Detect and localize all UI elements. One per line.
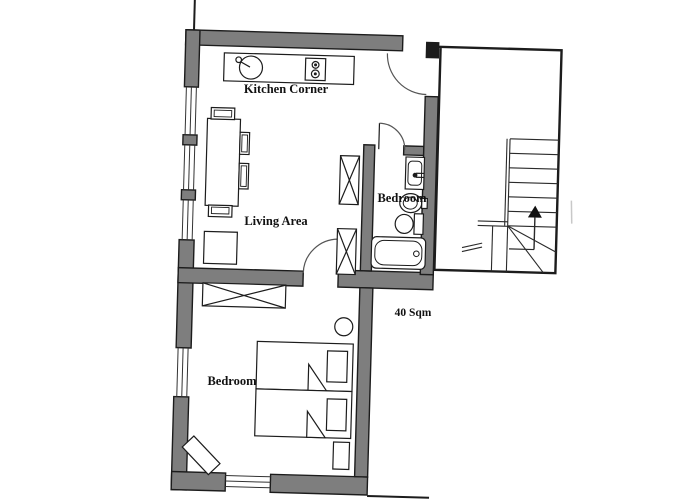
- floorplan-canvas: Kitchen Corner Living Area Bedroom Bedro…: [0, 0, 700, 500]
- stairwell-outline: [432, 47, 561, 273]
- living-label: Living Area: [244, 214, 308, 228]
- floorplan-page: Kitchen Corner Living Area Bedroom Bedro…: [0, 0, 700, 500]
- wall-bottom-right: [270, 474, 367, 495]
- bathroom-label: Bedroom: [377, 191, 427, 205]
- wall-window-mullion-2: [181, 190, 195, 200]
- toilet: [395, 213, 424, 234]
- bathroom-fixtures: [371, 156, 429, 269]
- labels: Kitchen Corner Living Area Bedroom Bedro…: [207, 82, 431, 388]
- bedroom-door-arc: [303, 238, 339, 274]
- kitchen-fixtures: [224, 53, 355, 85]
- wall-bottom-left: [171, 472, 225, 492]
- stove: [305, 58, 326, 81]
- entry-door-arc: [386, 53, 427, 94]
- stairwell: [432, 47, 576, 274]
- scan-artifact: [571, 201, 573, 224]
- twin-bed-1: [256, 341, 353, 391]
- storage-cabinet-x-1: [339, 156, 359, 205]
- wall-window-mullion-1: [183, 135, 197, 145]
- wardrobe-x: [202, 283, 286, 308]
- bathroom-door: [379, 123, 406, 150]
- side-table: [203, 231, 237, 264]
- boundary-line-bottom: [367, 496, 429, 498]
- wall-left-middle: [176, 240, 194, 348]
- kitchen-label: Kitchen Corner: [244, 82, 329, 96]
- pillow: [327, 351, 348, 383]
- nightstand: [333, 442, 350, 469]
- living-furniture: [203, 107, 360, 274]
- bathtub: [371, 237, 426, 270]
- stool: [335, 318, 353, 336]
- wall-bedroom-right: [355, 288, 373, 477]
- bedroom-label: Bedroom: [207, 374, 257, 388]
- twin-bed-2: [255, 389, 352, 439]
- wall-bathroom-top: [404, 146, 424, 156]
- dining-table: [205, 118, 240, 206]
- chair-top: [211, 107, 235, 119]
- window-living-1: [185, 87, 196, 135]
- chair-bottom: [208, 205, 232, 217]
- boundary-line-top: [194, 0, 195, 30]
- plan-geometry: [171, 0, 578, 500]
- stair-break-mark: [462, 243, 482, 253]
- winder-step-line: [507, 226, 557, 252]
- washbasin: [405, 157, 424, 190]
- pillow: [326, 399, 346, 431]
- chair-right-2: [239, 163, 249, 189]
- window-bedroom-left: [177, 348, 188, 397]
- storage-cabinet-x-2: [336, 229, 356, 275]
- wall-top: [186, 30, 403, 51]
- chair-right-1: [240, 132, 250, 154]
- window-living-3: [182, 200, 193, 240]
- window-bedroom-bottom: [225, 476, 270, 488]
- area-label: 40 Sqm: [395, 307, 432, 319]
- window-living-2: [184, 145, 195, 190]
- wall-left-upper: [184, 30, 200, 87]
- rug: [182, 436, 220, 475]
- staircase: [461, 138, 559, 274]
- entry-door-frame: [426, 42, 438, 57]
